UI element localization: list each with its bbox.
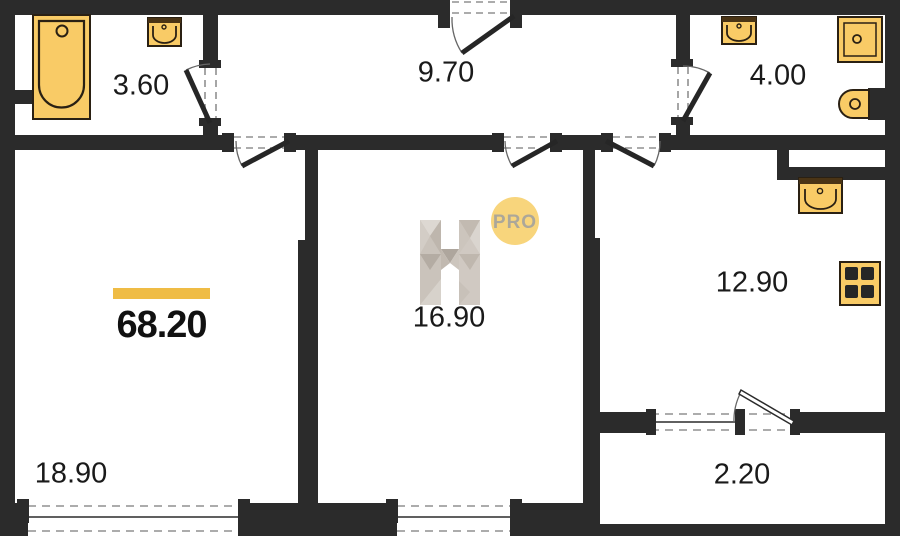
total-area-value: 68.20 xyxy=(113,304,210,347)
area-label-toilet: 4.00 xyxy=(750,60,806,93)
brand-logo: PRO xyxy=(420,197,539,305)
brand-letter-h xyxy=(420,220,480,305)
total-area-block: 68.20 xyxy=(113,288,210,347)
area-label-room: 16.90 xyxy=(413,302,486,335)
bathroom-sink-icon xyxy=(148,18,181,46)
area-label-living-room: 18.90 xyxy=(35,458,108,491)
area-label-hallway: 9.70 xyxy=(418,57,474,90)
bathtub-icon xyxy=(33,15,90,119)
kitchen-sink-icon xyxy=(799,178,842,213)
floor-plan: PRO 3.60 9.70 4.00 16.90 12.90 18.90 2.2… xyxy=(0,0,900,536)
stove-icon xyxy=(840,262,880,305)
shower-icon xyxy=(838,17,882,62)
toilet-icon xyxy=(839,90,869,118)
toilet-sink-icon xyxy=(722,17,756,44)
area-label-kitchen: 12.90 xyxy=(716,267,789,300)
total-area-accent-bar xyxy=(113,288,210,299)
area-label-balcony: 2.20 xyxy=(714,459,770,492)
area-label-bathroom: 3.60 xyxy=(113,70,169,103)
brand-pro-label: PRO xyxy=(493,212,537,233)
